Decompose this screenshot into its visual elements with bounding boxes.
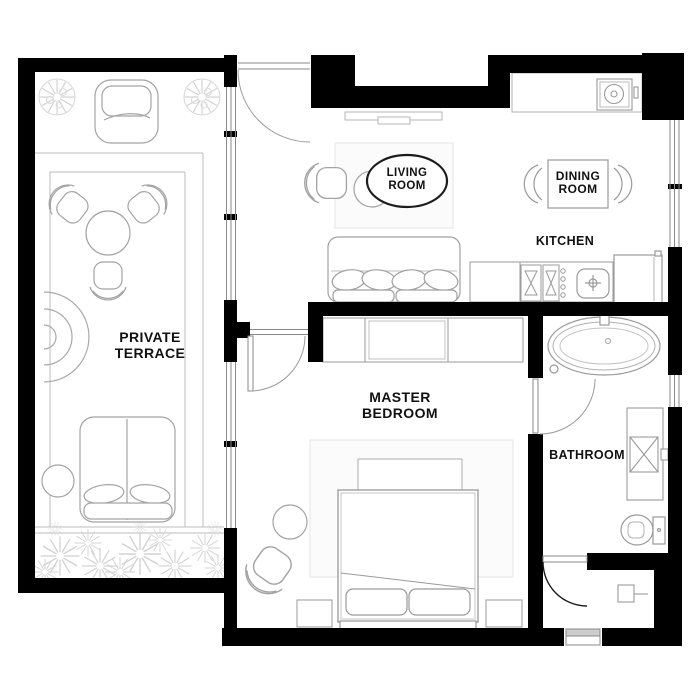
- utility-door: [543, 556, 587, 606]
- terrace-armchair: [122, 178, 174, 230]
- nightstand: [297, 600, 332, 627]
- living-armchair: [305, 163, 347, 203]
- window-right-upper: [670, 120, 679, 247]
- flower-bed: [32, 520, 232, 588]
- bathtub: [548, 311, 660, 375]
- entry-door: [238, 63, 310, 142]
- dining-room-label: DINING ROOM: [538, 170, 618, 197]
- bed-bench: [358, 459, 462, 491]
- potted-plant-icon: [39, 79, 75, 115]
- terrace-lounge-chair: [95, 80, 158, 143]
- refrigerator: [614, 251, 662, 303]
- terrace-daybed: [80, 417, 175, 522]
- washing-machine: [597, 79, 638, 110]
- private-terrace-label: PRIVATE TERRACE: [90, 330, 210, 361]
- kitchen-label: KITCHEN: [515, 234, 615, 248]
- water-heater: [618, 585, 648, 602]
- nightstand: [486, 600, 522, 627]
- bedroom-armchair: [238, 540, 299, 602]
- window-bottom: [566, 629, 600, 645]
- bedroom-side-table: [273, 505, 307, 539]
- round-lounger: [44, 292, 89, 382]
- wardrobe: [323, 318, 523, 362]
- master-bedroom-label: MASTER BEDROOM: [340, 390, 460, 421]
- bed: [338, 490, 478, 630]
- kitchen-sink: [577, 269, 609, 298]
- toilet: [621, 515, 665, 545]
- bathroom-label: BATHROOM: [537, 448, 637, 462]
- window-right-lower: [670, 375, 679, 407]
- potted-plant-icon: [184, 79, 220, 115]
- floor-plan: PRIVATE TERRACE LIVING ROOM DINING ROOM …: [0, 0, 700, 700]
- bedroom-door: [248, 330, 308, 392]
- living-room-label: LIVING ROOM: [367, 167, 447, 193]
- tv-console: [345, 112, 442, 124]
- bathroom-door: [533, 379, 595, 434]
- sofa: [328, 237, 460, 302]
- terrace-side-table: [42, 465, 74, 497]
- terrace-armchair: [90, 262, 126, 300]
- terrace-round-table: [86, 211, 130, 255]
